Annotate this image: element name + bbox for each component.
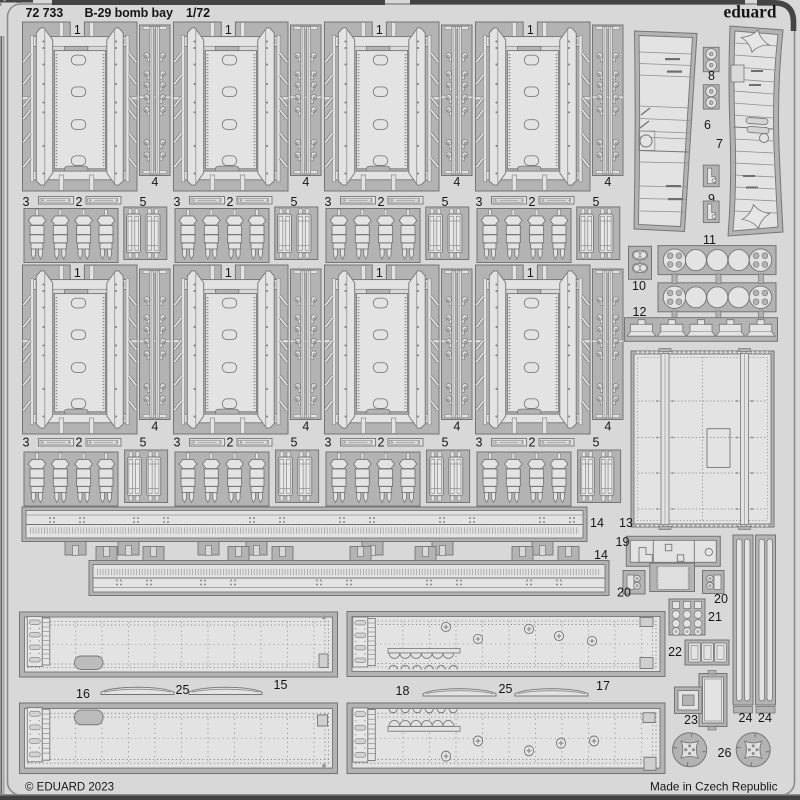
svg-text:3: 3 bbox=[325, 195, 332, 209]
svg-text:3: 3 bbox=[174, 436, 181, 450]
svg-text:7: 7 bbox=[716, 137, 723, 151]
svg-text:2: 2 bbox=[378, 195, 385, 209]
svg-text:12: 12 bbox=[633, 305, 647, 319]
svg-text:5: 5 bbox=[140, 436, 147, 450]
svg-text:25: 25 bbox=[499, 682, 513, 696]
svg-text:4: 4 bbox=[302, 420, 309, 434]
svg-text:1/72: 1/72 bbox=[186, 6, 210, 20]
svg-text:15: 15 bbox=[274, 678, 288, 692]
svg-text:19: 19 bbox=[616, 535, 630, 549]
svg-text:25: 25 bbox=[176, 683, 190, 697]
svg-text:5: 5 bbox=[291, 436, 298, 450]
svg-text:2: 2 bbox=[76, 195, 83, 209]
svg-text:3: 3 bbox=[476, 436, 483, 450]
svg-text:14: 14 bbox=[590, 516, 604, 530]
svg-text:4: 4 bbox=[151, 420, 158, 434]
svg-text:17: 17 bbox=[596, 679, 610, 693]
svg-text:14: 14 bbox=[594, 548, 608, 562]
svg-text:3: 3 bbox=[23, 195, 30, 209]
svg-text:5: 5 bbox=[593, 436, 600, 450]
svg-text:8: 8 bbox=[708, 69, 715, 83]
svg-text:2: 2 bbox=[529, 195, 536, 209]
svg-text:16: 16 bbox=[76, 687, 90, 701]
svg-text:2: 2 bbox=[529, 436, 536, 450]
svg-text:20: 20 bbox=[714, 592, 728, 606]
svg-text:22: 22 bbox=[668, 645, 682, 659]
svg-text:2: 2 bbox=[76, 436, 83, 450]
svg-text:Made in Czech Republic: Made in Czech Republic bbox=[650, 780, 778, 794]
svg-text:2: 2 bbox=[378, 436, 385, 450]
svg-text:21: 21 bbox=[708, 610, 722, 624]
svg-text:4: 4 bbox=[302, 175, 309, 189]
svg-text:4: 4 bbox=[604, 420, 611, 434]
svg-text:11: 11 bbox=[703, 233, 716, 247]
svg-text:3: 3 bbox=[476, 195, 483, 209]
svg-text:3: 3 bbox=[174, 195, 181, 209]
svg-text:4: 4 bbox=[604, 175, 611, 189]
svg-text:13: 13 bbox=[619, 516, 633, 530]
svg-text:72 733: 72 733 bbox=[26, 6, 64, 20]
svg-text:23: 23 bbox=[684, 713, 698, 727]
svg-text:eduard: eduard bbox=[724, 1, 777, 21]
svg-text:B-29 bomb bay: B-29 bomb bay bbox=[85, 6, 173, 20]
svg-text:5: 5 bbox=[442, 436, 449, 450]
svg-text:4: 4 bbox=[453, 420, 460, 434]
svg-text:24: 24 bbox=[739, 711, 753, 725]
svg-text:3: 3 bbox=[325, 436, 332, 450]
svg-text:2: 2 bbox=[227, 195, 234, 209]
svg-text:10: 10 bbox=[632, 279, 646, 293]
svg-text:2: 2 bbox=[227, 436, 234, 450]
svg-text:4: 4 bbox=[453, 175, 460, 189]
svg-text:6: 6 bbox=[704, 118, 711, 132]
svg-text:4: 4 bbox=[151, 175, 158, 189]
svg-text:24: 24 bbox=[758, 711, 772, 725]
svg-text:26: 26 bbox=[718, 746, 732, 760]
svg-text:20: 20 bbox=[617, 586, 631, 600]
svg-text:18: 18 bbox=[396, 684, 410, 698]
svg-text:© EDUARD 2023: © EDUARD 2023 bbox=[25, 780, 114, 794]
svg-text:3: 3 bbox=[23, 436, 30, 450]
